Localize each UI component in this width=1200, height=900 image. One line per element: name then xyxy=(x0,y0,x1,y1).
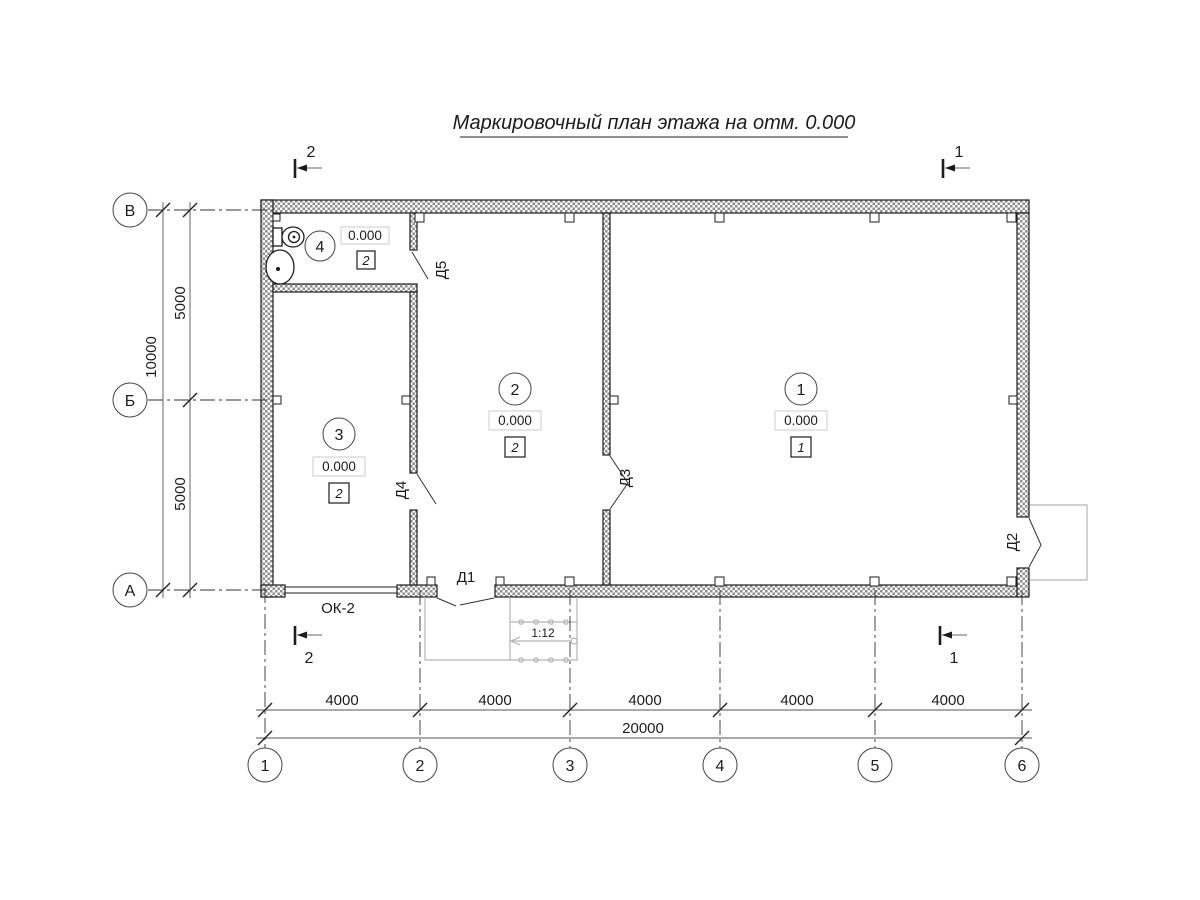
bottom-dimensions: 4000 4000 4000 4000 4000 20000 xyxy=(256,692,1032,745)
wall-segment xyxy=(261,200,1029,213)
column-mark xyxy=(565,213,574,222)
col-axis-label-5: 5 xyxy=(871,758,880,775)
room-4-number: 4 xyxy=(316,239,325,256)
dim-bottom-seg-5: 4000 xyxy=(931,692,964,709)
column-mark xyxy=(870,577,879,586)
door-label-d5: Д5 xyxy=(433,261,450,280)
column-mark xyxy=(565,577,574,586)
column-mark xyxy=(415,213,424,222)
room-2-elevation: 0.000 xyxy=(498,413,532,428)
sink-icon xyxy=(266,250,294,284)
dim-left-total: 10000 xyxy=(143,336,160,378)
walls xyxy=(261,200,1029,597)
column-mark xyxy=(402,396,410,404)
row-axis-label-v: В xyxy=(125,203,136,220)
sink-drain-icon xyxy=(276,267,280,271)
column-mark xyxy=(273,396,281,404)
room-2-number: 2 xyxy=(511,382,520,399)
door-label-d1: Д1 xyxy=(457,569,476,586)
room-1-finish: 1 xyxy=(797,440,804,455)
floor-plan-canvas: Маркировочный план этажа на отм. 0.000 xyxy=(0,0,1200,900)
column-mark xyxy=(870,213,879,222)
column-mark xyxy=(496,577,504,585)
room-2-finish: 2 xyxy=(510,440,519,455)
door-leaf-d1 xyxy=(437,598,456,606)
door-leaf-d1 xyxy=(460,598,494,605)
col-axis-label-3: 3 xyxy=(566,758,575,775)
section-1-label: 1 xyxy=(955,144,964,161)
wall-segment xyxy=(603,510,610,585)
room-3-annotation: 3 0.000 2 xyxy=(313,418,365,503)
section-mark-2-bottom: 2 xyxy=(295,626,322,667)
column-mark xyxy=(715,213,724,222)
room-4-finish: 2 xyxy=(361,253,370,268)
wall-segment xyxy=(410,292,417,473)
row-axis-label-a: А xyxy=(125,583,136,600)
column-mark xyxy=(427,577,435,585)
row-axes: В Б А xyxy=(113,193,273,607)
floor-plan-page: { "title": "Маркировочный план этажа на … xyxy=(0,0,1200,900)
dim-left-seg-2: 5000 xyxy=(172,477,189,510)
wall-segment xyxy=(603,213,610,455)
room-1-annotation: 1 0.000 1 xyxy=(775,373,827,457)
door-leaf-d2 xyxy=(1029,518,1041,567)
drawing-title-block: Маркировочный план этажа на отм. 0.000 xyxy=(453,112,856,137)
room-2-annotation: 2 0.000 2 xyxy=(489,373,541,457)
row-axis-label-b: Б xyxy=(125,393,136,410)
col-axes: 1 2 3 4 5 6 xyxy=(248,588,1039,782)
section-arrow-icon xyxy=(297,165,307,172)
toilet-tank-icon xyxy=(273,228,282,246)
room-1-number: 1 xyxy=(797,382,806,399)
col-axis-label-4: 4 xyxy=(716,758,725,775)
door-label-d4: Д4 xyxy=(393,481,410,500)
column-mark xyxy=(715,577,724,586)
section-mark-2-top: 2 xyxy=(295,144,322,178)
column-mark xyxy=(610,396,618,404)
column-marks xyxy=(273,213,1017,586)
room-4-annotation: 4 0.000 2 xyxy=(305,227,389,269)
dim-bottom-seg-2: 4000 xyxy=(478,692,511,709)
wall-segment xyxy=(410,510,417,585)
col-axis-label-1: 1 xyxy=(261,758,270,775)
room-1-elevation: 0.000 xyxy=(784,413,818,428)
dim-left-seg-1: 5000 xyxy=(172,286,189,319)
ramp-slope-label: 1:12 xyxy=(531,626,555,640)
section-1-label: 1 xyxy=(950,650,959,667)
wall-segment xyxy=(495,585,1017,597)
section-arrow-icon xyxy=(942,632,952,639)
column-mark xyxy=(1009,396,1017,404)
dim-bottom-total: 20000 xyxy=(622,720,664,737)
section-mark-1-bottom: 1 xyxy=(940,626,967,667)
room-3-number: 3 xyxy=(335,427,344,444)
room-3-elevation: 0.000 xyxy=(322,459,356,474)
section-2-label: 2 xyxy=(305,650,314,667)
wall-segment xyxy=(1017,568,1029,597)
column-mark xyxy=(1007,213,1016,222)
dim-bottom-seg-4: 4000 xyxy=(780,692,813,709)
door-leaf-d5 xyxy=(412,252,428,279)
section-arrow-icon xyxy=(945,165,955,172)
col-axis-label-2: 2 xyxy=(416,758,425,775)
door-label-d2: Д2 xyxy=(1004,533,1021,552)
column-mark xyxy=(273,214,280,221)
entrance-porch-d2 xyxy=(1030,505,1087,580)
wall-segment xyxy=(397,585,437,597)
col-axis-label-6: 6 xyxy=(1018,758,1027,775)
wall-segment xyxy=(273,284,417,292)
drawing-title: Маркировочный план этажа на отм. 0.000 xyxy=(453,112,856,134)
door-leaf-d4 xyxy=(417,474,436,504)
room-3-finish: 2 xyxy=(334,486,343,501)
door-label-d3: Д3 xyxy=(617,469,634,488)
toilet-dot-icon xyxy=(293,236,296,239)
entrance-porch-d1: 1:12 xyxy=(425,597,577,662)
room-4-elevation: 0.000 xyxy=(348,228,382,243)
section-mark-1-top: 1 xyxy=(943,144,970,178)
wall-segment xyxy=(1017,213,1029,517)
window-ok2: ОК-2 xyxy=(285,587,397,617)
column-mark xyxy=(1007,577,1016,586)
window-label: ОК-2 xyxy=(321,600,355,617)
section-2-label: 2 xyxy=(307,144,316,161)
dim-bottom-seg-1: 4000 xyxy=(325,692,358,709)
section-arrow-icon xyxy=(297,632,307,639)
dim-bottom-seg-3: 4000 xyxy=(628,692,661,709)
